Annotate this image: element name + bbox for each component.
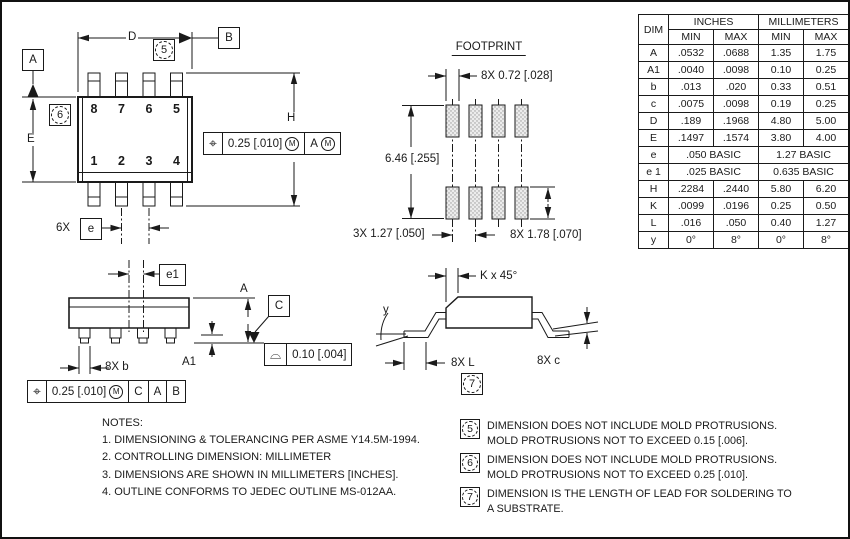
max-header: MAX: [804, 30, 849, 45]
table-row: b.013.0200.330.51: [639, 79, 849, 96]
value-cell: .013: [669, 79, 714, 96]
datum-ref: A: [310, 138, 318, 150]
mmc-modifier-icon: M: [321, 137, 335, 151]
note-flag-7-label: 7: [469, 378, 475, 390]
value-cell: .0099: [669, 198, 714, 215]
flag-note-6: 6 DIMENSION DOES NOT INCLUDE MOLD PROTRU…: [460, 453, 777, 482]
flatness-fcf: ⌓ 0.10 [.004]: [264, 343, 352, 366]
position-symbol: ⌖: [204, 133, 222, 154]
flag-number: 7: [467, 491, 473, 503]
flatness-symbol: ⌓: [265, 344, 286, 365]
value-cell: 8°: [714, 232, 759, 249]
table-header-row: DIM INCHES MILLIMETERS: [639, 15, 849, 30]
pin-number-4: 4: [173, 154, 180, 168]
dimension-table: DIM INCHES MILLIMETERS MIN MAX MIN MAX A…: [638, 14, 849, 249]
table-row: c.0075.00980.190.25: [639, 96, 849, 113]
min-header: MIN: [759, 30, 804, 45]
table-row: L.016.0500.401.27: [639, 215, 849, 232]
table-row: A1.0040.00980.100.25: [639, 62, 849, 79]
dim-header: DIM: [639, 15, 669, 45]
drawing-sheet: D B A 5 6 E H 8 7 6 5 1 2 3 4 6X e ⌖ 0.2…: [0, 0, 850, 539]
pin-number-3: 3: [146, 154, 153, 168]
value-cell: 6.20: [804, 181, 849, 198]
datum-ref-cell: A M: [304, 133, 340, 154]
pad-width-label: 8X 0.72 [.028]: [479, 70, 555, 83]
value-cell: .1497: [669, 130, 714, 147]
note-flag-6: 6: [460, 453, 480, 473]
dim-cell: D: [639, 113, 669, 130]
position-fcf-top: ⌖ 0.25 [.010] M A M: [203, 132, 341, 155]
note-item: 3. DIMENSIONS ARE SHOWN IN MILLIMETERS […: [102, 467, 420, 484]
value-cell: .1574: [714, 130, 759, 147]
tolerance-value: 0.25 [.010]: [52, 386, 106, 398]
lead-angle-label: y: [381, 304, 391, 317]
note-flag-7: 7: [461, 373, 483, 395]
row-span-label: 6.46 [.255]: [383, 153, 441, 166]
flag-note-line: MOLD PROTRUSIONS NOT TO EXCEED 0.25 [.01…: [487, 468, 777, 483]
datum-c-label: C: [275, 300, 283, 312]
dim-cell: c: [639, 96, 669, 113]
value-cell: 1.75: [804, 45, 849, 62]
pitch-count-label: 6X: [54, 222, 72, 235]
dim-cell: E: [639, 130, 669, 147]
note-flag-5: 5: [460, 419, 480, 439]
value-cell: 0.33: [759, 79, 804, 96]
value-cell: 0.25: [804, 96, 849, 113]
note-item: 1. DIMENSIONING & TOLERANCING PER ASME Y…: [102, 432, 420, 449]
value-cell: .0098: [714, 96, 759, 113]
note-item: 2. CONTROLLING DIMENSION: MILLIMETER: [102, 449, 420, 466]
inches-header: INCHES: [669, 15, 759, 30]
lead-length-label: 8X L: [449, 357, 477, 370]
pitch-e-box: e: [80, 218, 102, 240]
position-fcf-front: ⌖ 0.25 [.010] M C A B: [27, 380, 186, 403]
value-cell: 1.27 BASIC: [759, 147, 849, 164]
table-row: D.189.19684.805.00: [639, 113, 849, 130]
dim-cell: K: [639, 198, 669, 215]
dim-cell: A: [639, 45, 669, 62]
position-symbol: ⌖: [28, 381, 46, 402]
value-cell: 1.35: [759, 45, 804, 62]
value-cell: 4.00: [804, 130, 849, 147]
dim-h-label: H: [285, 112, 297, 125]
flag-number: 6: [467, 457, 473, 469]
value-cell: 3.80: [759, 130, 804, 147]
note-flag-6: 6: [49, 104, 71, 126]
flag-note-7: 7 DIMENSION IS THE LENGTH OF LEAD FOR SO…: [460, 487, 792, 516]
table-row: K.0099.01960.250.50: [639, 198, 849, 215]
note-flag-6-label: 6: [57, 109, 63, 121]
datum-b-box: B: [218, 27, 240, 49]
value-cell: .050 BASIC: [669, 147, 759, 164]
note-flag-5: 5: [153, 39, 175, 61]
notes-title: NOTES:: [102, 415, 420, 432]
pad-height-label: 8X 1.78 [.070]: [508, 229, 584, 242]
datum-a-label: A: [29, 54, 37, 66]
flatness-tolerance: 0.10 [.004]: [286, 344, 351, 365]
note-item: 4. OUTLINE CONFORMS TO JEDEC OUTLINE MS-…: [102, 484, 420, 501]
footprint-title: FOOTPRINT: [452, 41, 526, 56]
dim-cell: H: [639, 181, 669, 198]
tolerance-value: 0.25 [.010]: [228, 138, 282, 150]
value-cell: 5.00: [804, 113, 849, 130]
value-cell: 0.635 BASIC: [759, 164, 849, 181]
pin-number-7: 7: [118, 102, 125, 116]
value-cell: 4.80: [759, 113, 804, 130]
value-cell: .0196: [714, 198, 759, 215]
value-cell: .025 BASIC: [669, 164, 759, 181]
tolerance-cell: 0.25 [.010] M: [46, 381, 128, 402]
value-cell: .0532: [669, 45, 714, 62]
lead-thickness-label: 8X c: [535, 355, 562, 368]
value-cell: 0.50: [804, 198, 849, 215]
dim-e1-box: e1: [159, 264, 186, 286]
value-cell: 0°: [669, 232, 714, 249]
datum-b-label: B: [225, 32, 233, 44]
table-subheader-row: MIN MAX MIN MAX: [639, 30, 849, 45]
flag-note-line: DIMENSION IS THE LENGTH OF LEAD FOR SOLD…: [487, 487, 792, 502]
value-cell: .0075: [669, 96, 714, 113]
flag-note-text: DIMENSION DOES NOT INCLUDE MOLD PROTRUSI…: [487, 453, 777, 482]
value-cell: 1.27: [804, 215, 849, 232]
tolerance-cell: 0.25 [.010] M: [222, 133, 304, 154]
end-view-linework: [376, 268, 598, 370]
note-flag-5-label: 5: [161, 44, 167, 56]
value-cell: .2440: [714, 181, 759, 198]
pin-number-1: 1: [91, 154, 98, 168]
table-row: e 1.025 BASIC0.635 BASIC: [639, 164, 849, 181]
table-row: y0°8°0°8°: [639, 232, 849, 249]
dim-a-label: A: [238, 283, 250, 296]
flag-number: 5: [467, 423, 473, 435]
value-cell: .0040: [669, 62, 714, 79]
dim-cell: y: [639, 232, 669, 249]
table-row: A.0532.06881.351.75: [639, 45, 849, 62]
pitch-label: 3X 1.27 [.050]: [351, 228, 427, 241]
dim-cell: e 1: [639, 164, 669, 181]
notes-block: NOTES: 1. DIMENSIONING & TOLERANCING PER…: [102, 415, 420, 501]
dim-a1-label: A1: [180, 356, 198, 369]
flag-note-line: MOLD PROTRUSIONS NOT TO EXCEED 0.15 [.00…: [487, 434, 777, 449]
value-cell: .1968: [714, 113, 759, 130]
chamfer-label: K x 45°: [478, 270, 519, 283]
flag-note-line: DIMENSION DOES NOT INCLUDE MOLD PROTRUSI…: [487, 453, 777, 468]
value-cell: .2284: [669, 181, 714, 198]
pin-number-5: 5: [173, 102, 180, 116]
min-header: MIN: [669, 30, 714, 45]
value-cell: .016: [669, 215, 714, 232]
value-cell: 0.25: [759, 198, 804, 215]
value-cell: .050: [714, 215, 759, 232]
value-cell: .020: [714, 79, 759, 96]
datum-ref-b: B: [166, 381, 185, 402]
value-cell: 0.40: [759, 215, 804, 232]
table-row: H.2284.24405.806.20: [639, 181, 849, 198]
datum-ref-c: C: [128, 381, 147, 402]
mm-header: MILLIMETERS: [759, 15, 849, 30]
dim-cell: L: [639, 215, 669, 232]
mmc-modifier-icon: M: [285, 137, 299, 151]
value-cell: 0.25: [804, 62, 849, 79]
table-row: E.1497.15743.804.00: [639, 130, 849, 147]
datum-a-box: A: [22, 49, 44, 71]
dim-d-label: D: [126, 31, 138, 44]
lead-width-label: 8X b: [103, 361, 131, 374]
datum-c-box: C: [268, 295, 290, 317]
dim-cell: b: [639, 79, 669, 96]
value-cell: .189: [669, 113, 714, 130]
mmc-modifier-icon: M: [109, 385, 123, 399]
pin-number-6: 6: [146, 102, 153, 116]
value-cell: 0°: [759, 232, 804, 249]
dim-cell: A1: [639, 62, 669, 79]
flag-note-line: A SUBSTRATE.: [487, 502, 792, 517]
value-cell: 8°: [804, 232, 849, 249]
value-cell: 0.19: [759, 96, 804, 113]
flag-note-5: 5 DIMENSION DOES NOT INCLUDE MOLD PROTRU…: [460, 419, 777, 448]
dim-cell: e: [639, 147, 669, 164]
table-row: e.050 BASIC1.27 BASIC: [639, 147, 849, 164]
value-cell: 5.80: [759, 181, 804, 198]
datum-ref-a: A: [148, 381, 167, 402]
pitch-e-label: e: [88, 223, 94, 235]
pin-number-2: 2: [118, 154, 125, 168]
pin-number-8: 8: [91, 102, 98, 116]
dim-e1-label: e1: [166, 269, 179, 281]
value-cell: 0.51: [804, 79, 849, 96]
flag-note-line: DIMENSION DOES NOT INCLUDE MOLD PROTRUSI…: [487, 419, 777, 434]
dim-e-label: E: [25, 133, 37, 146]
value-cell: .0688: [714, 45, 759, 62]
value-cell: .0098: [714, 62, 759, 79]
flag-note-text: DIMENSION IS THE LENGTH OF LEAD FOR SOLD…: [487, 487, 792, 516]
value-cell: 0.10: [759, 62, 804, 79]
flag-note-text: DIMENSION DOES NOT INCLUDE MOLD PROTRUSI…: [487, 419, 777, 448]
note-flag-7: 7: [460, 487, 480, 507]
max-header: MAX: [714, 30, 759, 45]
